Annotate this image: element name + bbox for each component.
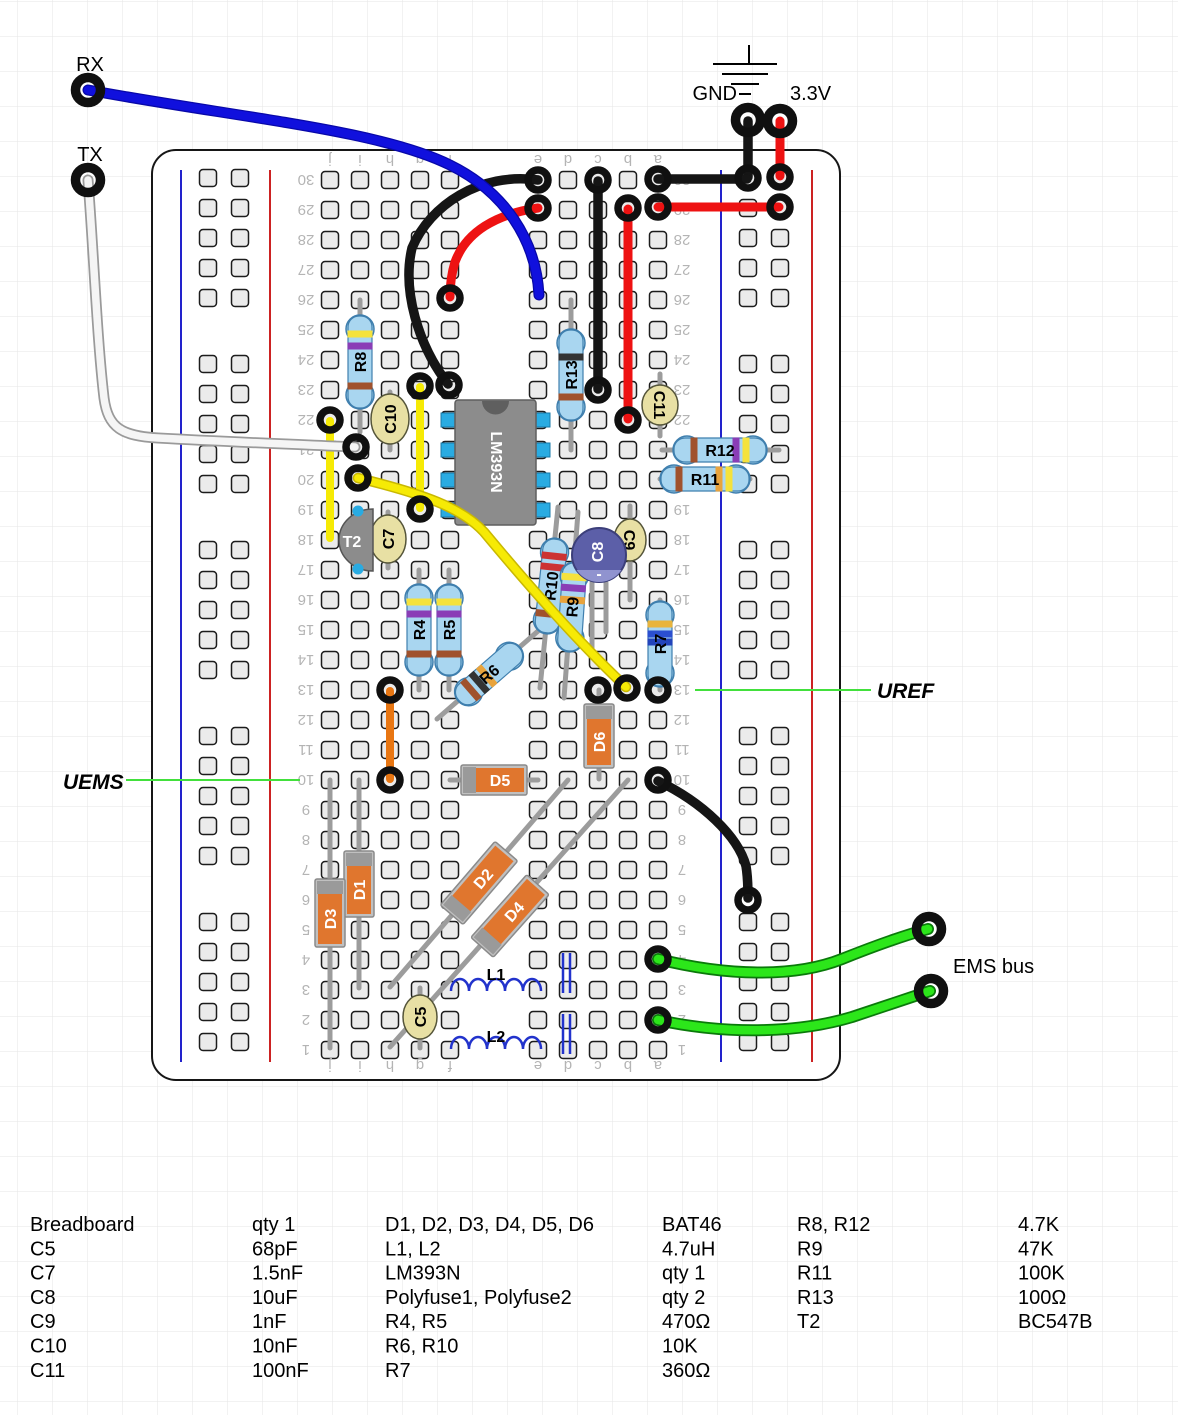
row-number: 3 — [302, 981, 310, 998]
component-C7: C7 — [370, 515, 406, 563]
breadboard-hole — [590, 1012, 607, 1029]
breadboard-hole — [352, 652, 369, 669]
parts-list-cell: 4.7uH — [662, 1238, 715, 1260]
rail-hole — [200, 848, 217, 865]
row-number: 16 — [298, 591, 315, 608]
rail-hole — [232, 572, 249, 589]
breadboard-hole — [322, 592, 339, 609]
rail-hole — [772, 230, 789, 247]
row-number: 4 — [302, 951, 310, 968]
rail-hole — [740, 572, 757, 589]
parts-list-cell: LM393N — [385, 1263, 461, 1285]
breadboard-hole — [560, 232, 577, 249]
breadboard-hole — [590, 442, 607, 459]
row-number: 28 — [298, 231, 315, 248]
row-number: 25 — [674, 321, 691, 338]
rail-hole — [200, 788, 217, 805]
rail-hole — [772, 758, 789, 775]
parts-list-cell: 470Ω — [662, 1311, 710, 1333]
rail-hole — [740, 230, 757, 247]
breadboard-hole — [650, 712, 667, 729]
breadboard-hole — [442, 232, 459, 249]
breadboard-hole — [442, 862, 459, 879]
rail-hole — [740, 356, 757, 373]
rail-hole — [740, 728, 757, 745]
resistor-band — [407, 651, 432, 658]
breadboard-hole — [560, 802, 577, 819]
breadboard-hole — [650, 562, 667, 579]
breadboard-hole — [620, 472, 637, 489]
rail-hole — [232, 914, 249, 931]
component-D6: D6 — [584, 704, 614, 768]
breadboard-hole — [590, 412, 607, 429]
component-label: D5 — [490, 773, 511, 790]
diode-cathode-band — [346, 853, 372, 866]
rail-hole — [772, 728, 789, 745]
resistor-band — [559, 354, 584, 361]
breadboard-hole — [560, 712, 577, 729]
breadboard-hole — [322, 622, 339, 639]
rail-hole — [740, 662, 757, 679]
rail-hole — [772, 386, 789, 403]
rail-hole — [232, 290, 249, 307]
breadboard-hole — [382, 1012, 399, 1029]
column-letter: e — [534, 151, 542, 168]
breadboard-hole — [620, 922, 637, 939]
rail-hole — [740, 944, 757, 961]
rail-hole — [200, 914, 217, 931]
parts-list-cell: 360Ω — [662, 1360, 710, 1382]
row-number: 2 — [302, 1011, 310, 1028]
component-C5: C5 — [403, 995, 437, 1039]
row-number: 27 — [674, 261, 691, 278]
rail-hole — [200, 200, 217, 217]
row-number: 26 — [298, 291, 315, 308]
component-label: C7 — [381, 529, 398, 550]
breadboard-hole — [590, 952, 607, 969]
breadboard-hole — [412, 862, 429, 879]
rail-hole — [772, 356, 789, 373]
component-label: C8 — [590, 542, 607, 563]
breadboard-hole — [382, 862, 399, 879]
column-letter: j — [328, 1057, 332, 1074]
row-number: 24 — [674, 351, 691, 368]
column-letter: g — [416, 1057, 424, 1074]
breadboard-hole — [620, 652, 637, 669]
rail-hole — [772, 632, 789, 649]
breadboard-diagram: jihgfedcbajihgfedcba11223344556677889910… — [0, 0, 1178, 1415]
parts-list-cell: qty 1 — [252, 1214, 295, 1236]
rail-hole — [772, 1034, 789, 1051]
breadboard-hole — [590, 832, 607, 849]
parts-list-cell: Breadboard — [30, 1214, 135, 1236]
component-C10: C10 — [371, 394, 409, 444]
breadboard-hole — [322, 202, 339, 219]
transistor-pin — [353, 564, 364, 575]
rail-hole — [200, 974, 217, 991]
resistor-band — [407, 599, 432, 606]
parts-list-cell: R4, R5 — [385, 1311, 447, 1333]
resistor-band — [691, 438, 698, 463]
breadboard-hole — [322, 562, 339, 579]
breadboard-hole — [442, 532, 459, 549]
parts-list-cell: T2 — [797, 1311, 820, 1333]
breadboard-hole — [590, 982, 607, 999]
row-number: 20 — [298, 471, 315, 488]
breadboard-hole — [352, 682, 369, 699]
breadboard-hole — [650, 862, 667, 879]
breadboard-hole — [412, 772, 429, 789]
rail-hole — [200, 602, 217, 619]
breadboard-hole — [352, 742, 369, 759]
breadboard-hole — [352, 172, 369, 189]
breadboard-hole — [620, 622, 637, 639]
breadboard-hole — [650, 742, 667, 759]
breadboard-hole — [530, 742, 547, 759]
column-letter: c — [594, 1057, 602, 1074]
breadboard-hole — [442, 322, 459, 339]
breadboard-hole — [442, 1012, 459, 1029]
parts-list-cell: BAT46 — [662, 1214, 722, 1236]
parts-list-cell: 100Ω — [1018, 1287, 1066, 1309]
rail-hole — [740, 1004, 757, 1021]
row-number: 13 — [298, 681, 315, 698]
breadboard-hole — [560, 472, 577, 489]
breadboard-hole — [650, 232, 667, 249]
component-label: C5 — [413, 1007, 430, 1028]
rail-hole — [740, 542, 757, 559]
rail-hole — [740, 602, 757, 619]
rail-hole — [200, 230, 217, 247]
rail-hole — [740, 290, 757, 307]
breadboard-hole — [650, 292, 667, 309]
column-letter: i — [358, 151, 361, 168]
component-label: D1 — [352, 880, 369, 901]
component-R8: R8 — [346, 315, 374, 409]
breadboard-hole — [382, 352, 399, 369]
rail-hole — [232, 848, 249, 865]
breadboard-hole — [650, 832, 667, 849]
parts-list-cell: C8 — [30, 1287, 56, 1309]
parts-list-cell: 100nF — [252, 1360, 309, 1382]
row-number: 30 — [298, 171, 315, 188]
component-label: R12 — [705, 443, 734, 460]
breadboard-hole — [382, 892, 399, 909]
breadboard-hole — [650, 352, 667, 369]
uref-label: UREF — [877, 680, 935, 703]
breadboard-hole — [382, 952, 399, 969]
breadboard-hole — [352, 592, 369, 609]
ems-bus-label: EMS bus — [953, 956, 1034, 978]
resistor-band — [407, 611, 432, 618]
resistor-band — [437, 651, 462, 658]
component-label: T2 — [343, 534, 362, 551]
component-D3: D3 — [315, 879, 345, 947]
resistor-band — [559, 394, 584, 401]
breadboard-hole — [650, 982, 667, 999]
breadboard-hole — [530, 352, 547, 369]
breadboard-hole — [530, 952, 547, 969]
breadboard-hole — [382, 622, 399, 639]
row-number: 16 — [674, 591, 691, 608]
rail-hole — [772, 848, 789, 865]
rail-hole — [200, 386, 217, 403]
breadboard-hole — [322, 382, 339, 399]
rail-hole — [740, 818, 757, 835]
breadboard-hole — [412, 202, 429, 219]
component-R4: R4 — [405, 584, 433, 676]
rail-hole — [200, 290, 217, 307]
column-letter: h — [386, 151, 394, 168]
component-D1: D1 — [344, 851, 374, 917]
resistor-band — [676, 467, 683, 492]
gnd-label: GND — [693, 83, 737, 105]
rail-hole — [200, 446, 217, 463]
row-number: 5 — [678, 921, 686, 938]
breadboard-hole — [530, 1012, 547, 1029]
parts-list-cell: D1, D2, D3, D4, D5, D6 — [385, 1214, 594, 1236]
pin-3v3-center — [776, 117, 785, 126]
row-number: 19 — [298, 501, 315, 518]
rail-hole — [232, 974, 249, 991]
rail-hole — [232, 260, 249, 277]
rail-hole — [772, 572, 789, 589]
rail-hole — [200, 260, 217, 277]
rail-hole — [772, 662, 789, 679]
breadboard-hole — [352, 262, 369, 279]
rail-hole — [232, 446, 249, 463]
breadboard-hole — [620, 172, 637, 189]
breadboard-hole — [412, 802, 429, 819]
uems-label: UEMS — [63, 771, 124, 794]
rail-hole — [772, 1004, 789, 1021]
column-letter: e — [534, 1057, 542, 1074]
diode-cathode-band — [317, 881, 343, 894]
breadboard-hole — [322, 652, 339, 669]
rail-hole — [772, 476, 789, 493]
breadboard-hole — [322, 292, 339, 309]
row-number: 15 — [674, 621, 691, 638]
parts-list-cell: 47K — [1018, 1238, 1054, 1260]
rail-hole — [740, 632, 757, 649]
breadboard-hole — [530, 322, 547, 339]
rail-hole — [232, 662, 249, 679]
component-label: R7 — [653, 634, 670, 655]
breadboard-hole — [590, 922, 607, 939]
row-number: 8 — [302, 831, 310, 848]
breadboard-hole — [322, 742, 339, 759]
breadboard-hole — [382, 922, 399, 939]
column-letter: d — [564, 151, 572, 168]
breadboard-hole — [560, 892, 577, 909]
parts-list-cell: R8, R12 — [797, 1214, 870, 1236]
rail-hole — [200, 1034, 217, 1051]
rail-hole — [200, 758, 217, 775]
row-number: 9 — [302, 801, 310, 818]
row-number: 28 — [674, 231, 691, 248]
breadboard-hole — [530, 712, 547, 729]
row-number: 24 — [298, 351, 315, 368]
resistor-band — [348, 331, 373, 338]
resistor-band — [348, 343, 373, 350]
rail-hole — [772, 914, 789, 931]
rail-hole — [232, 416, 249, 433]
parts-list-cell: C10 — [30, 1336, 67, 1358]
rail-hole — [772, 944, 789, 961]
row-number: 26 — [674, 291, 691, 308]
capacitor-minus-mark: - — [596, 566, 601, 583]
resistor-band — [648, 621, 673, 628]
component-label: R11 — [691, 472, 720, 489]
breadboard-hole — [560, 742, 577, 759]
row-number: 11 — [298, 741, 314, 758]
breadboard-hole — [650, 532, 667, 549]
component-label: D6 — [592, 732, 609, 753]
breadboard-hole — [590, 892, 607, 909]
breadboard-hole — [412, 742, 429, 759]
row-number: 14 — [298, 651, 315, 668]
rail-hole — [772, 818, 789, 835]
rail-hole — [200, 476, 217, 493]
breadboard-hole — [322, 262, 339, 279]
breadboard-hole — [412, 892, 429, 909]
breadboard-hole — [382, 262, 399, 279]
row-number: 18 — [674, 531, 691, 548]
row-number: 22 — [298, 411, 315, 428]
row-number: 1 — [678, 1041, 686, 1058]
breadboard-hole — [382, 202, 399, 219]
breadboard-hole — [560, 262, 577, 279]
breadboard-hole — [382, 292, 399, 309]
column-letter: b — [624, 1057, 632, 1074]
parts-list-cell: 68pF — [252, 1238, 298, 1260]
resistor-band — [437, 611, 462, 618]
breadboard-hole — [650, 802, 667, 819]
breadboard-hole — [620, 952, 637, 969]
breadboard-hole — [382, 802, 399, 819]
breadboard-hole — [412, 532, 429, 549]
row-number: 15 — [298, 621, 315, 638]
rail-hole — [232, 200, 249, 217]
breadboard-hole — [352, 622, 369, 639]
component-label: R13 — [564, 360, 581, 389]
breadboard-hole — [620, 1042, 637, 1059]
rail-hole — [232, 1004, 249, 1021]
component-label: LM393N — [487, 431, 504, 492]
parts-list-cell: 1nF — [252, 1311, 286, 1333]
breadboard-hole — [322, 712, 339, 729]
row-number: 17 — [674, 561, 691, 578]
breadboard-hole — [382, 322, 399, 339]
column-letter: b — [624, 151, 632, 168]
breadboard-hole — [382, 592, 399, 609]
rail-hole — [740, 260, 757, 277]
breadboard-hole — [560, 292, 577, 309]
component-R7: R7 — [646, 601, 674, 687]
parts-list-cell: C9 — [30, 1311, 56, 1333]
breadboard-hole — [650, 922, 667, 939]
parts-list-cell: C5 — [30, 1238, 56, 1260]
breadboard-hole — [530, 1042, 547, 1059]
breadboard-hole — [442, 742, 459, 759]
row-number: 6 — [678, 891, 686, 908]
3v3-label: 3.3V — [790, 83, 832, 105]
rail-hole — [772, 260, 789, 277]
breadboard-hole — [412, 712, 429, 729]
parts-list-cell: L1, L2 — [385, 1238, 441, 1260]
parts-list-cell: R11 — [797, 1263, 832, 1285]
parts-list-cell: C7 — [30, 1263, 56, 1285]
rail-hole — [232, 230, 249, 247]
parts-list-cell: C11 — [30, 1360, 65, 1382]
parts-list-cell: 10nF — [252, 1336, 298, 1358]
rail-hole — [200, 542, 217, 559]
rail-hole — [232, 386, 249, 403]
parts-list-cell: 1.5nF — [252, 1263, 303, 1285]
resistor-band — [726, 467, 733, 492]
rail-hole — [200, 170, 217, 187]
row-number: 1 — [302, 1041, 310, 1058]
diode-cathode-band — [463, 767, 476, 793]
resistor-band — [348, 383, 373, 390]
row-number: 14 — [674, 651, 691, 668]
component-D5: D5 — [461, 765, 527, 795]
row-number: 23 — [298, 381, 315, 398]
row-number: 7 — [678, 861, 686, 878]
breadboard-hole — [590, 502, 607, 519]
breadboard-hole — [560, 172, 577, 189]
breadboard-hole — [412, 922, 429, 939]
rail-hole — [740, 758, 757, 775]
component-C11: C11 — [642, 385, 678, 425]
breadboard-hole — [620, 832, 637, 849]
breadboard-hole — [442, 1042, 459, 1059]
rail-hole — [772, 788, 789, 805]
parts-list-cell: R9 — [797, 1238, 823, 1260]
column-letter: h — [386, 1057, 394, 1074]
rail-hole — [232, 758, 249, 775]
parts-list-cell: R13 — [797, 1287, 834, 1309]
component-label: R4 — [412, 620, 429, 641]
rail-hole — [200, 1004, 217, 1021]
transistor-pin — [353, 506, 364, 517]
parts-list-cell: 4.7K — [1018, 1214, 1060, 1236]
row-number: 9 — [678, 801, 686, 818]
rail-hole — [200, 728, 217, 745]
breadboard-hole — [560, 862, 577, 879]
rail-hole — [772, 542, 789, 559]
row-number: 29 — [298, 201, 315, 218]
breadboard-hole — [530, 832, 547, 849]
component-R5: R5 — [435, 584, 463, 676]
breadboard-hole — [412, 832, 429, 849]
row-number: 3 — [678, 981, 686, 998]
breadboard-hole — [650, 892, 667, 909]
rx-label: RX — [76, 54, 104, 76]
breadboard-hole — [620, 892, 637, 909]
row-number: 7 — [302, 861, 310, 878]
diode-cathode-band — [586, 706, 612, 719]
rail-hole — [232, 602, 249, 619]
rail-hole — [200, 572, 217, 589]
row-number: 5 — [302, 921, 310, 938]
component-label: R5 — [442, 620, 459, 641]
parts-list-cell: 10K — [662, 1336, 698, 1358]
parts-list-cell: qty 2 — [662, 1287, 705, 1309]
component-R12: R12 — [673, 436, 767, 464]
breadboard-hole — [620, 442, 637, 459]
breadboard-hole — [322, 172, 339, 189]
